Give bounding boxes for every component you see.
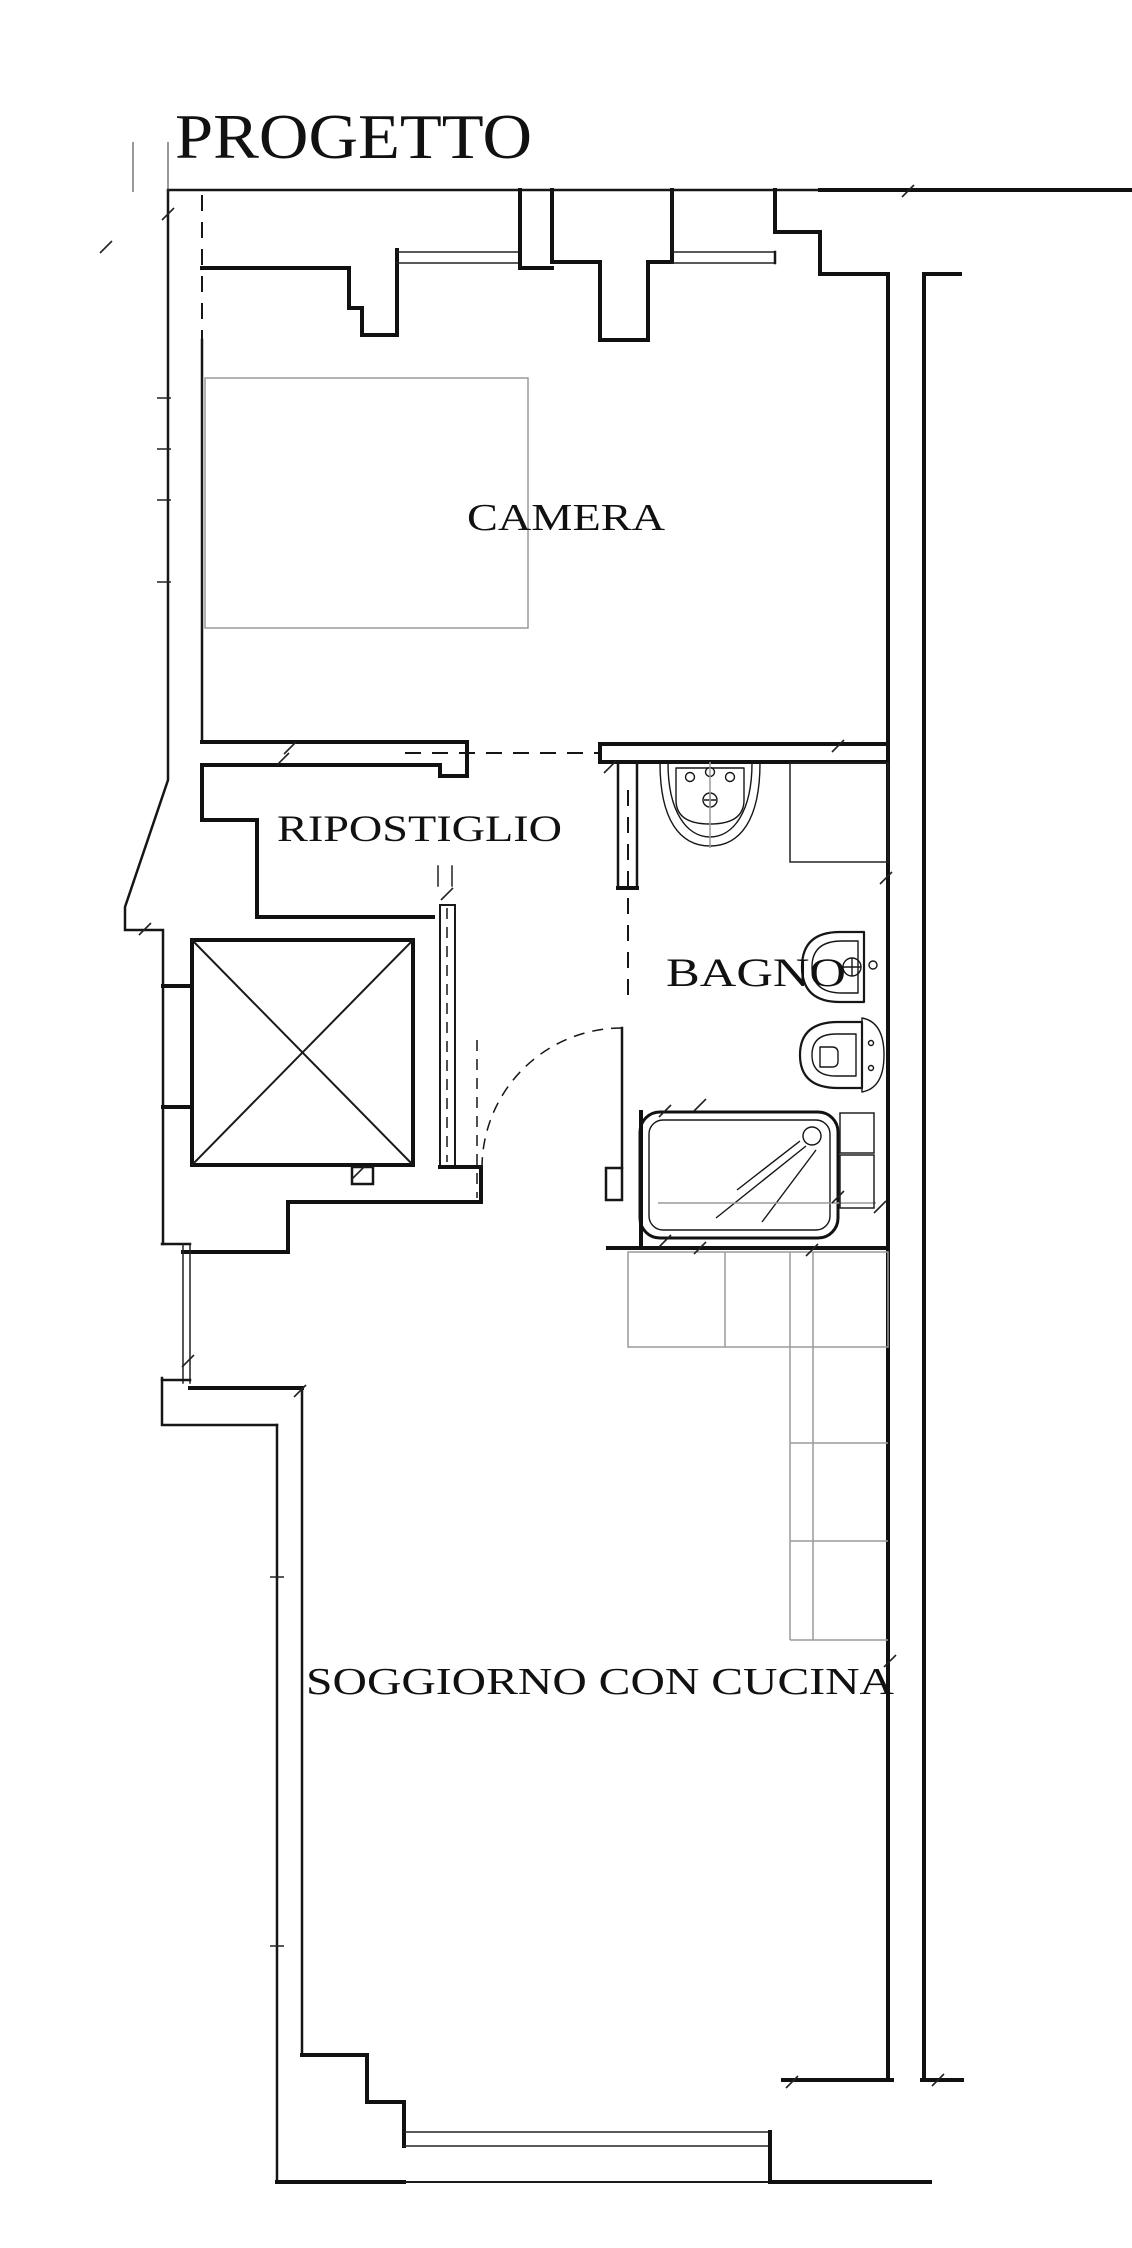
window-camera (397, 190, 520, 268)
sink (660, 762, 760, 848)
door (482, 1028, 622, 1200)
window-soggiorno-bottom (404, 2132, 930, 2182)
dimension-ticks (100, 185, 944, 2088)
wall-pillar-right (775, 190, 886, 274)
room-ripostiglio: RIPOSTIGLIO (202, 765, 562, 917)
toilet (800, 1018, 884, 1092)
washing-machine (790, 763, 888, 862)
floor-plan-drawing: PROGETTO (0, 0, 1132, 2248)
room-camera: CAMERA (205, 378, 666, 628)
room-label-ripostiglio: RIPOSTIGLIO (277, 809, 562, 850)
floor-plan-page: PROGETTO (0, 0, 1132, 2248)
door-jamb (606, 1168, 622, 1200)
door-swing-arc (482, 1028, 622, 1168)
entry-nook-walls (162, 1167, 481, 1252)
room-soggiorno: SOGGIORNO CON CUCINA (162, 1244, 930, 2182)
room-label-soggiorno: SOGGIORNO CON CUCINA (306, 1661, 895, 1703)
kitchen-counter (628, 1252, 888, 1640)
plan-title: PROGETTO (175, 101, 532, 172)
partition-wall (440, 905, 481, 1167)
wall-pillar-center (552, 190, 672, 340)
wall-camera-ripostiglio (202, 742, 598, 776)
wall-pillar-left (349, 250, 397, 335)
room-label-bagno: BAGNO (666, 950, 846, 995)
window-top-right (672, 190, 775, 263)
shower (640, 1112, 876, 1238)
elevator-shaft (163, 940, 413, 1165)
room-label-camera: CAMERA (467, 497, 666, 539)
exterior-wall-right (783, 274, 962, 2080)
